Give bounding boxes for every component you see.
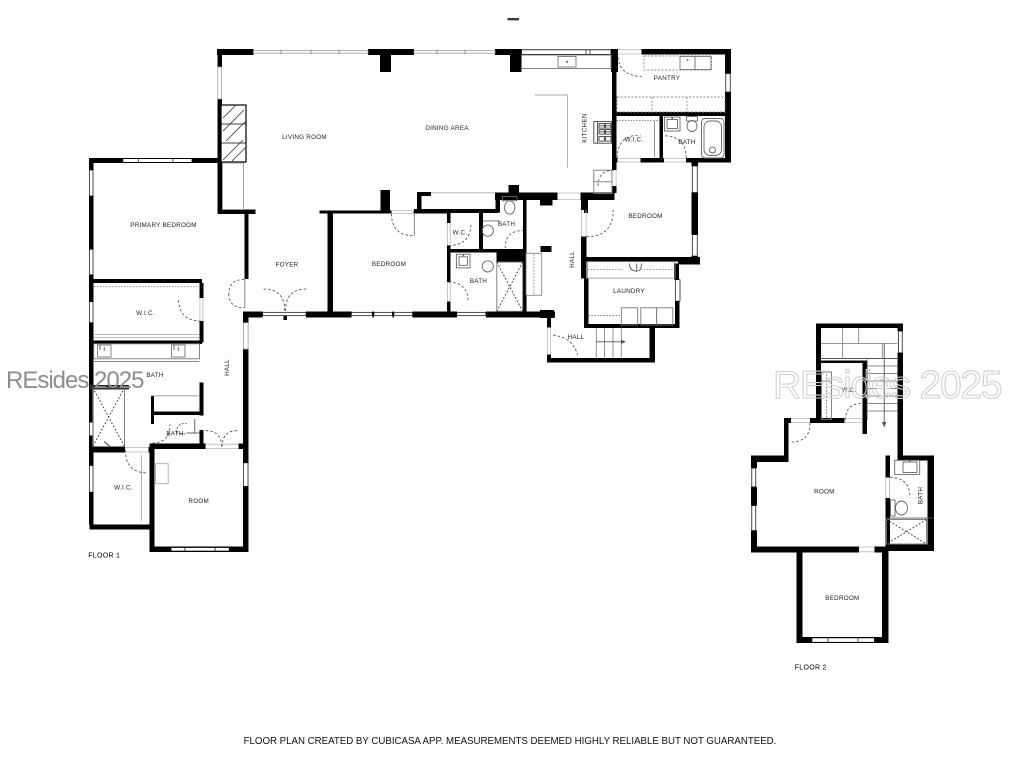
svg-text:BATH: BATH: [166, 431, 184, 438]
svg-text:ROOM: ROOM: [188, 498, 209, 505]
svg-text:LIVING ROOM: LIVING ROOM: [282, 134, 327, 141]
svg-text:BEDROOM: BEDROOM: [825, 595, 859, 602]
svg-text:REsides 2025: REsides 2025: [6, 367, 144, 394]
svg-text:HALL: HALL: [569, 251, 576, 268]
svg-text:BATH: BATH: [678, 139, 696, 146]
svg-text:REsides 2025: REsides 2025: [773, 364, 1002, 407]
svg-text:ROOM: ROOM: [814, 489, 835, 496]
svg-text:W.C.: W.C.: [453, 230, 468, 237]
svg-text:BATH: BATH: [470, 278, 488, 285]
svg-text:W.I.C.: W.I.C.: [136, 310, 155, 317]
svg-text:BATH: BATH: [146, 372, 164, 379]
svg-text:PRIMARY BEDROOM: PRIMARY BEDROOM: [130, 222, 197, 229]
svg-text:HALL: HALL: [224, 359, 231, 376]
svg-text:W.I.C.: W.I.C.: [114, 485, 133, 492]
svg-text:BEDROOM: BEDROOM: [372, 261, 406, 268]
svg-text:BEDROOM: BEDROOM: [628, 213, 662, 220]
svg-text:HALL: HALL: [568, 334, 585, 341]
svg-text:FOYER: FOYER: [276, 262, 299, 269]
svg-text:DINING AREA: DINING AREA: [425, 125, 469, 132]
svg-text:BATH: BATH: [498, 221, 516, 228]
svg-text:KITCHEN: KITCHEN: [582, 113, 589, 143]
svg-text:FLOOR PLAN CREATED BY CUBICASA: FLOOR PLAN CREATED BY CUBICASA APP. MEAS…: [244, 736, 777, 747]
svg-text:LAUNDRY: LAUNDRY: [613, 288, 645, 295]
svg-text:FLOOR 1: FLOOR 1: [88, 553, 120, 560]
svg-text:W.I.C.: W.I.C.: [625, 137, 644, 144]
svg-text:BATH: BATH: [917, 487, 924, 505]
svg-text:FLOOR 2: FLOOR 2: [795, 665, 827, 672]
svg-text:PANTRY: PANTRY: [654, 75, 681, 82]
